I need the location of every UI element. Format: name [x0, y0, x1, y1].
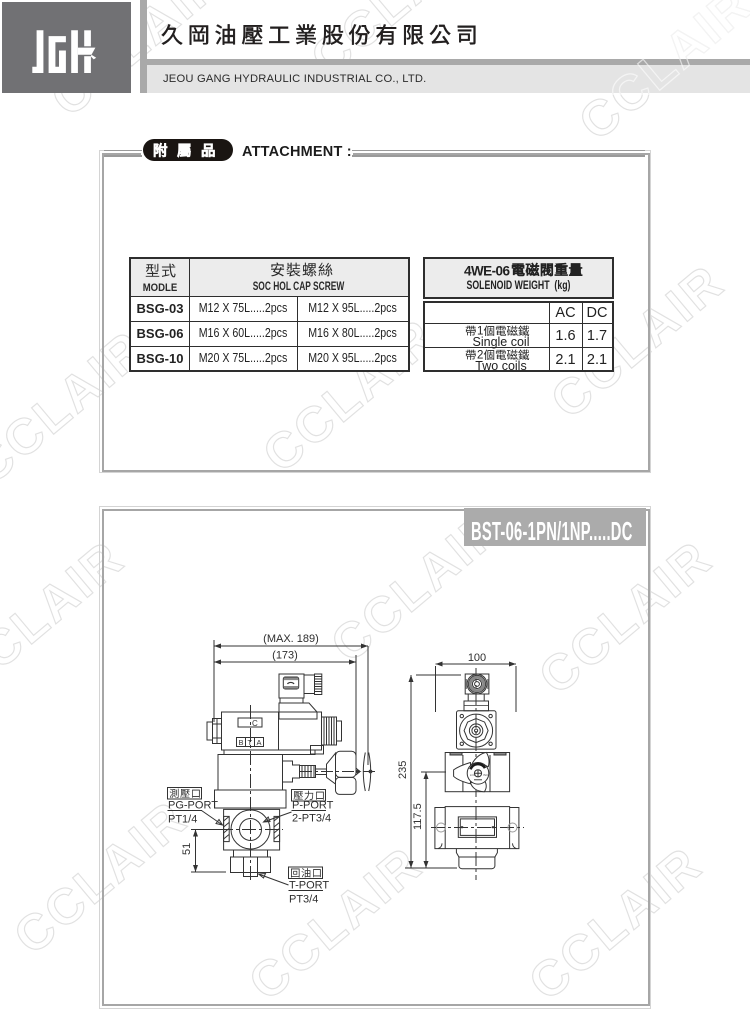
svg-text:INC: INC [483, 773, 489, 777]
svg-text:CCLAIR: CCLAIR [568, 0, 750, 95]
svg-text:2-PT3/4: 2-PT3/4 [292, 813, 331, 825]
svg-text:4WE-06: 4WE-06 [464, 264, 510, 279]
svg-text:(173): (173) [272, 650, 298, 662]
svg-text:235: 235 [397, 761, 409, 779]
svg-text:B: B [239, 738, 244, 747]
svg-text:PT1/4: PT1/4 [168, 814, 197, 826]
svg-text:C: C [252, 719, 258, 728]
svg-text:LOC: LOC [470, 773, 477, 777]
svg-text:117.5: 117.5 [412, 803, 424, 830]
svg-text:100: 100 [468, 652, 486, 664]
svg-text:P-PORT: P-PORT [292, 800, 334, 812]
svg-text:A: A [257, 738, 262, 747]
svg-text:(MAX. 189): (MAX. 189) [263, 633, 319, 645]
svg-text:51: 51 [181, 843, 193, 855]
svg-text:PT3/4: PT3/4 [289, 894, 318, 906]
svg-text:PG-PORT: PG-PORT [168, 800, 218, 812]
svg-text:T-PORT: T-PORT [289, 880, 329, 892]
